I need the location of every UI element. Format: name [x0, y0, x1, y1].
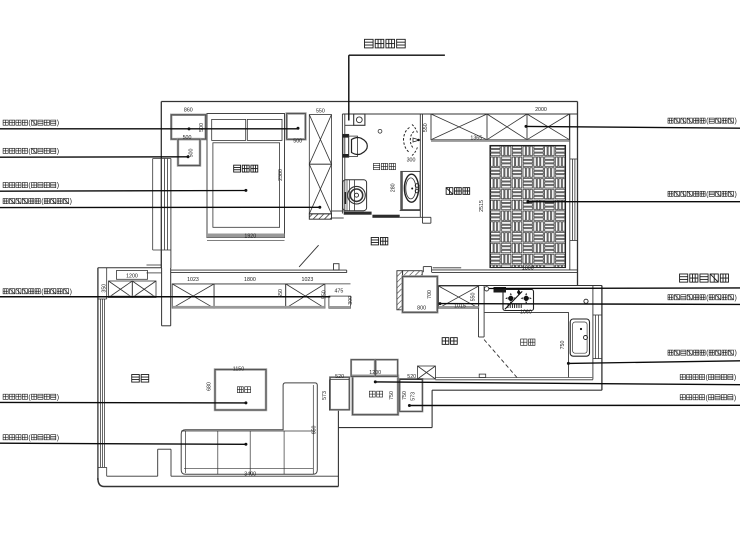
svg-text:350: 350 — [102, 284, 108, 293]
svg-text:520: 520 — [407, 374, 416, 380]
svg-text:475: 475 — [334, 288, 343, 294]
svg-text:): ) — [734, 350, 736, 357]
svg-text:750: 750 — [560, 341, 566, 350]
svg-text:2000: 2000 — [535, 107, 547, 113]
svg-text:): ) — [734, 395, 736, 402]
svg-text:550: 550 — [470, 293, 476, 302]
svg-text:500: 500 — [183, 135, 192, 141]
svg-text:280: 280 — [391, 183, 397, 192]
svg-text:550: 550 — [423, 123, 429, 132]
svg-text:1023: 1023 — [187, 277, 199, 283]
svg-text:300: 300 — [407, 158, 416, 164]
svg-text:680: 680 — [207, 382, 213, 391]
svg-text:500: 500 — [188, 149, 194, 158]
svg-text:1800: 1800 — [522, 265, 534, 271]
svg-text:): ) — [57, 120, 59, 127]
svg-text:): ) — [734, 295, 736, 302]
svg-text:): ) — [734, 375, 736, 382]
svg-text:): ) — [57, 394, 59, 401]
svg-text:): ) — [57, 435, 59, 442]
svg-text:): ) — [57, 148, 59, 155]
svg-text:3400: 3400 — [244, 472, 256, 478]
svg-text:800: 800 — [417, 306, 426, 312]
svg-text:1023: 1023 — [302, 277, 314, 283]
svg-text:): ) — [57, 183, 59, 190]
svg-text:2515: 2515 — [479, 200, 485, 212]
svg-text:1015: 1015 — [454, 303, 466, 309]
svg-text:550: 550 — [278, 289, 284, 298]
svg-text:300: 300 — [348, 296, 354, 305]
svg-text:650: 650 — [312, 426, 318, 435]
svg-text:1150: 1150 — [233, 367, 244, 373]
svg-text:): ) — [734, 191, 736, 198]
svg-text:1200: 1200 — [126, 274, 138, 280]
svg-text:550: 550 — [316, 108, 325, 114]
svg-text:500: 500 — [199, 123, 205, 132]
svg-text:550: 550 — [322, 290, 328, 299]
svg-text:1200: 1200 — [369, 370, 381, 376]
svg-text:): ) — [70, 289, 72, 296]
svg-text:860: 860 — [184, 108, 193, 114]
svg-text:1060: 1060 — [520, 309, 532, 315]
svg-text:520: 520 — [335, 374, 344, 380]
svg-text:750: 750 — [402, 391, 408, 400]
svg-text:): ) — [70, 199, 72, 206]
svg-text:1920: 1920 — [244, 233, 256, 239]
svg-text:573: 573 — [411, 392, 417, 401]
svg-text:573: 573 — [322, 391, 328, 400]
svg-text:500: 500 — [293, 139, 302, 145]
svg-text:): ) — [734, 118, 736, 125]
svg-text:750: 750 — [389, 391, 395, 400]
svg-text:1800: 1800 — [244, 277, 256, 283]
svg-text:2380: 2380 — [278, 169, 284, 181]
svg-text:700: 700 — [427, 290, 433, 299]
svg-text:1365: 1365 — [470, 135, 482, 141]
